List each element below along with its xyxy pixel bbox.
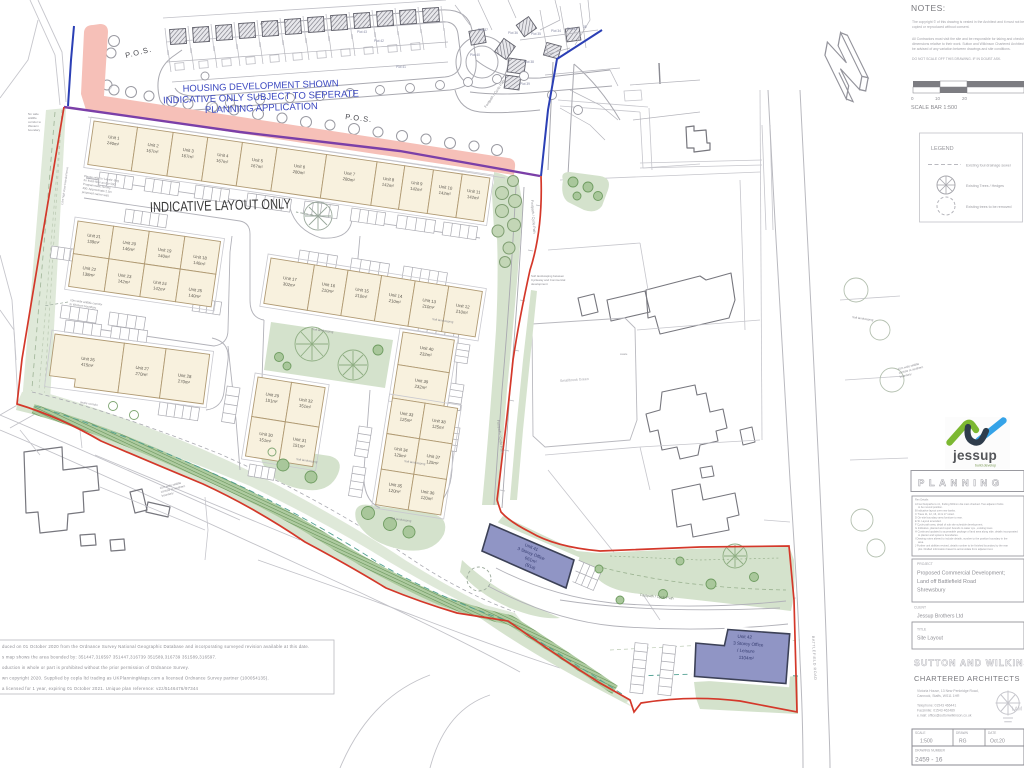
svg-text:Land off Battlefield Road: Land off Battlefield Road [917,579,976,585]
svg-text:SUTTON AND WILKINSON: SUTTON AND WILKINSON [914,658,1024,668]
svg-text:Plot 40: Plot 40 [470,53,480,57]
svg-text:Rev Details: Rev Details [915,498,929,502]
svg-text:NOTES:: NOTES: [911,3,946,13]
svg-text:20: 20 [962,96,968,101]
svg-text:J Further unit abilities re: J Further unit abilities revised, detail… [915,544,1008,548]
svg-text:2459 - 16: 2459 - 16 [915,757,943,764]
svg-text:All Contractors must visit the: All Contractors must visit the site and … [912,37,1024,41]
svg-text:Proposed Commercial Developmen: Proposed Commercial Development; [917,571,1006,577]
svg-text:Victoria House, 13 New Penkrid: Victoria House, 13 New Penkridge Road, [917,689,979,693]
svg-text:PROJECT: PROJECT [917,562,933,566]
svg-text:Plot 34: Plot 34 [551,29,561,33]
svg-text:H Continued updated to acce: H Continued updated to accessable packag… [915,530,1018,534]
svg-text:to planter and systems boundar: to planter and systems boundaries. [918,533,959,537]
svg-text:Plot 43: Plot 43 [357,30,367,34]
svg-text:e.mail: office@suttonwilkinson: e.mail: office@suttonwilkinson.co.uk [917,714,972,718]
svg-text:DATE: DATE [988,731,996,735]
svg-text:E St. Layout amended.: E St. Layout amended. [915,519,942,523]
svg-text:dimensions relative to their w: dimensions relative to their work. Sutto… [912,42,1024,46]
svg-text:PLANNING: PLANNING [918,478,1004,489]
svg-text:Plot 36: Plot 36 [508,31,518,35]
svg-text:Existing foul drainage sewer: Existing foul drainage sewer [966,164,1012,168]
svg-text:LAM: LAM [1012,707,1022,713]
svg-text:Cannock, Staffs, WS11 1HR: Cannock, Staffs, WS11 1HR [917,694,960,698]
svg-text:Plot 42: Plot 42 [374,39,384,43]
svg-text:plot. Drafted information bas: plot. Drafted information based to accom… [918,547,994,551]
svg-text:Shrewsbury: Shrewsbury [917,588,946,594]
svg-text:CLIENT: CLIENT [914,606,926,610]
svg-text:The copyright © of this drawin: The copyright © of this drawing is veste… [912,20,1024,24]
svg-text:Site Layout: Site Layout [917,636,944,642]
svg-text:Existing trees to be removed: Existing trees to be removed [966,205,1012,209]
svg-text:Plot 35: Plot 35 [531,32,541,36]
svg-text:CHARTERED ARCHITECTS: CHARTERED ARCHITECTS [914,674,1020,683]
svg-text:SCALE BAR 1:500: SCALE BAR 1:500 [911,105,957,111]
svg-text:Plot 37: Plot 37 [478,28,488,32]
svg-text:F Cycle path area, detail o: F Cycle path area, detail of sub site sc… [915,523,983,527]
svg-text:a licensed for 1 year, expirin: a licensed for 1 year, expiring 01 Octob… [2,686,199,691]
svg-text:Oct.20: Oct.20 [990,739,1005,745]
svg-text:be advised of any variation be: be advised of any variation between draw… [912,47,1011,51]
svg-text:Plot 41: Plot 41 [396,65,406,69]
svg-text:Unit 42: Unit 42 [737,634,752,640]
svg-text:DRAWING NUMBER: DRAWING NUMBER [915,749,946,753]
svg-text:G Indicative, planted and r: G Indicative, planted and report bounds … [915,526,993,530]
svg-text:35: 35 [583,25,587,29]
svg-text:Existing Trees / Hedges: Existing Trees / Hedges [966,184,1004,188]
svg-text:Facsimile: 01543 462489: Facsimile: 01543 462489 [917,709,955,713]
svg-text:build.develop: build.develop [975,464,996,468]
svg-text:I Drawing notes altered to: I Drawing notes altered to include detai… [915,537,1008,541]
svg-text:duced on 01 October 2020 from: duced on 01 October 2020 from the Ordnan… [2,644,310,649]
svg-text:area.: area. [918,540,924,544]
svg-text:jessup: jessup [952,448,997,463]
svg-text:C Trees 11, 12, 16, 14 & 17: C Trees 11, 12, 16, 14 & 17 noted. [915,512,955,516]
svg-text:RG: RG [959,739,967,745]
svg-text:1:500: 1:500 [920,739,933,745]
svg-text:TITLE: TITLE [917,628,927,632]
svg-text:B Indicative layout over ne: B Indicative layout over new banks. [915,509,956,513]
svg-text:wn copyright 2020. Supplied by: wn copyright 2020. Supplied by copla ltd… [2,676,269,681]
svg-text:DO NOT SCALE OFF THIS DRAWING.: DO NOT SCALE OFF THIS DRAWING. IF IN DOU… [912,57,1001,61]
svg-text:oduction in whole or part is p: oduction in whole or part is prohibited … [2,665,189,670]
svg-text:s map shows the area bounded b: s map shows the area bounded by: 351447,… [2,655,217,660]
svg-text:boundary: boundary [28,128,41,132]
svg-text:Telephone: 01543 466441: Telephone: 01543 466441 [917,704,956,708]
svg-text:Plot 38: Plot 38 [524,60,534,64]
svg-text:D On-site boundary area fur: D On-site boundary area furniture to rea… [915,516,963,520]
svg-text:10: 10 [935,96,941,101]
svg-text:copied or reproduced without c: copied or reproduced without consent. [912,25,970,29]
svg-text:to be moved position.: to be moved position. [918,505,943,509]
svg-text:Plot 33: Plot 33 [567,27,577,31]
svg-text:SCALE: SCALE [915,731,925,735]
svg-text:development: development [531,282,548,286]
svg-text:Jessup Brothers Ltd: Jessup Brothers Ltd [917,614,963,620]
svg-text:LEGEND: LEGEND [931,146,954,152]
svg-text:swale: swale [620,352,628,356]
svg-text:DRAWN: DRAWN [956,731,969,735]
svg-text:Plot 39: Plot 39 [520,82,530,86]
